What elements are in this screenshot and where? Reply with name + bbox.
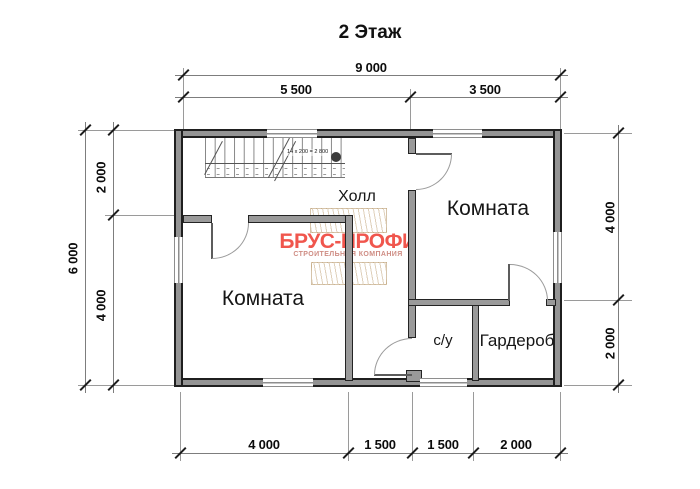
room-label-wardrobe: Гардероб bbox=[457, 331, 577, 351]
dim-bottom-1: 4 000 bbox=[224, 437, 304, 452]
dim-top-total: 9 000 bbox=[331, 60, 411, 75]
wall-bathroom-wardrobe-top bbox=[408, 299, 510, 306]
door-wardrobe-arc bbox=[510, 264, 548, 301]
dim-top-right: 3 500 bbox=[445, 82, 525, 97]
wall-leftroom-top-stub bbox=[183, 215, 212, 223]
dimension-line-left-total bbox=[85, 122, 86, 393]
extension-line bbox=[78, 130, 176, 131]
extension-line bbox=[78, 385, 176, 386]
wall-hall-room-stub-top bbox=[408, 138, 416, 154]
window-bottom-left bbox=[263, 378, 313, 387]
extension-line bbox=[564, 300, 632, 301]
dim-bottom-4: 2 000 bbox=[476, 437, 556, 452]
dimension-line-left-segments bbox=[113, 122, 114, 393]
extension-line bbox=[105, 215, 176, 216]
dim-right-top: 4 000 bbox=[603, 188, 618, 248]
floor-plan: 2 Этаж БРУС-ПРОФИ СТРОИТЕЛЬНАЯ КОМПАНИЯ … bbox=[0, 0, 700, 489]
extension-line bbox=[564, 133, 632, 134]
dim-top-left: 5 500 bbox=[256, 82, 336, 97]
stairs-newel-post-icon bbox=[331, 152, 341, 162]
window-top-left bbox=[267, 129, 317, 138]
stairs-annotation: 14 х 200 = 2 800 bbox=[287, 149, 328, 156]
room-label-room-left: Комната bbox=[183, 287, 343, 311]
dim-right-bottom: 2 000 bbox=[603, 314, 618, 374]
dim-left-top: 2 000 bbox=[94, 148, 109, 208]
room-label-hall: Холл bbox=[317, 188, 397, 206]
room-label-room-right: Комната bbox=[408, 197, 568, 221]
door-leftroom-arc bbox=[212, 223, 249, 259]
window-top-right bbox=[433, 129, 482, 138]
window-right bbox=[553, 232, 562, 283]
door-bathroom-arc bbox=[374, 338, 412, 375]
wall-leftroom-top bbox=[248, 215, 353, 223]
dim-bottom-3: 1 500 bbox=[403, 437, 483, 452]
door-rightroom-arc bbox=[416, 154, 452, 190]
dimension-line-top-total bbox=[175, 75, 568, 76]
dim-left-bottom: 4 000 bbox=[94, 276, 109, 336]
dimension-line-bottom bbox=[172, 453, 568, 454]
dimension-line-right bbox=[618, 125, 619, 393]
wall-outer-top bbox=[174, 129, 562, 138]
dim-left-total: 6 000 bbox=[66, 229, 81, 289]
wall-outer-bottom bbox=[174, 378, 562, 387]
plan-title: 2 Этаж bbox=[290, 22, 450, 44]
dimension-line-top-segments bbox=[175, 97, 568, 98]
window-left bbox=[174, 237, 183, 283]
extension-line bbox=[564, 385, 632, 386]
wall-leftroom-right bbox=[345, 215, 353, 381]
window-bottom-bathroom bbox=[420, 378, 467, 387]
